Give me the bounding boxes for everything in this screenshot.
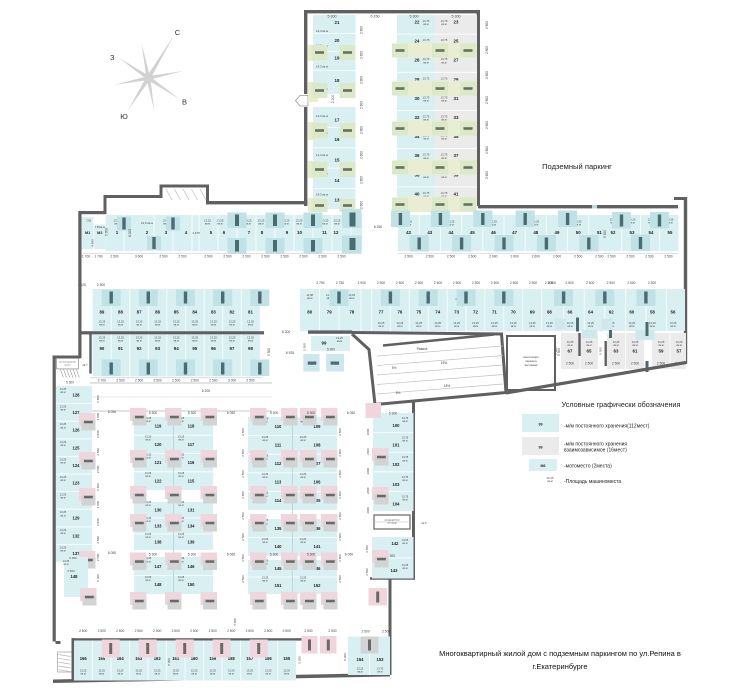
svg-text:94: 94 (174, 346, 179, 351)
svg-text:2 750: 2 750 (336, 281, 344, 285)
svg-text:87: 87 (137, 310, 142, 315)
svg-text:2 500: 2 500 (338, 428, 342, 436)
svg-text:2 600: 2 600 (485, 171, 489, 179)
svg-text:2 500: 2 500 (172, 379, 180, 383)
svg-text:2 600: 2 600 (360, 51, 364, 59)
svg-text:125: 125 (73, 445, 81, 450)
svg-text:2 500: 2 500 (153, 629, 161, 633)
svg-text:2 500: 2 500 (96, 518, 100, 526)
svg-text:кв.м: кв.м (588, 325, 593, 328)
svg-text:103: 103 (393, 482, 401, 487)
svg-text:74: 74 (435, 310, 440, 315)
svg-text:49: 49 (555, 230, 560, 235)
svg-text:126: 126 (73, 428, 81, 433)
svg-text:14,3 кв.м: 14,3 кв.м (316, 65, 328, 69)
svg-text:кв.м: кв.м (145, 475, 150, 478)
svg-text:2К-7: 2К-7 (82, 363, 88, 367)
svg-text:кв.м: кв.м (377, 671, 382, 674)
svg-text:78: 78 (349, 310, 354, 315)
svg-text:101: 101 (393, 443, 401, 448)
svg-text:5 300: 5 300 (603, 230, 607, 238)
svg-text:Ю: Ю (120, 112, 128, 121)
svg-text:16: 16 (335, 137, 340, 142)
svg-text:2 800: 2 800 (360, 26, 364, 34)
svg-text:М1: М1 (85, 231, 90, 235)
svg-text:2 500: 2 500 (241, 449, 245, 457)
svg-text:кв.м: кв.м (441, 138, 446, 141)
svg-text:кв.м: кв.м (423, 23, 428, 26)
svg-text:кв.м: кв.м (441, 23, 446, 26)
svg-text:вытяжная: вытяжная (525, 363, 538, 367)
svg-text:эвакуационная: эвакуационная (384, 520, 400, 522)
svg-text:5 300: 5 300 (599, 347, 603, 355)
svg-text:кв.м: кв.м (632, 344, 637, 347)
svg-text:7,65кв.м: 7,65кв.м (95, 225, 105, 229)
svg-text:59: 59 (659, 349, 664, 354)
svg-text:90: 90 (99, 346, 104, 351)
svg-text:кв.м: кв.м (99, 324, 104, 327)
svg-text:2 500: 2 500 (627, 281, 635, 285)
svg-text:2 500: 2 500 (299, 255, 307, 259)
svg-text:кв.м: кв.м (60, 462, 65, 465)
svg-text:86: 86 (155, 310, 160, 315)
svg-text:кв.м: кв.м (300, 439, 305, 442)
svg-text:кв.м: кв.м (300, 580, 305, 583)
svg-text:2 500: 2 500 (264, 629, 272, 633)
svg-text:81: 81 (248, 310, 253, 315)
svg-text:Условные графически обозначени: Условные графически обозначения (562, 400, 681, 409)
svg-text:кв.м: кв.м (60, 497, 65, 500)
svg-text:63: 63 (614, 349, 619, 354)
svg-text:3 600: 3 600 (135, 255, 143, 259)
svg-text:31: 31 (454, 96, 459, 101)
svg-text:2 500: 2 500 (135, 629, 143, 633)
svg-text:6 050: 6 050 (345, 553, 353, 557)
svg-text:5 300: 5 300 (188, 553, 196, 557)
svg-text:2 500: 2 500 (338, 491, 342, 499)
svg-text:2 500: 2 500 (96, 448, 100, 456)
svg-text:В: В (182, 98, 187, 107)
svg-text:2 500: 2 500 (361, 630, 369, 634)
svg-text:72: 72 (473, 310, 478, 315)
svg-text:50: 50 (576, 230, 581, 235)
svg-text:2 500: 2 500 (304, 629, 312, 633)
svg-text:2 500: 2 500 (396, 281, 404, 285)
svg-text:кв.м: кв.м (258, 223, 263, 226)
svg-text:кв.м: кв.м (178, 536, 183, 539)
svg-text:122: 122 (155, 478, 163, 483)
svg-text:2 500: 2 500 (241, 491, 245, 499)
svg-text:2 500: 2 500 (595, 255, 603, 259)
svg-text:2 600: 2 600 (510, 255, 518, 259)
svg-text:кв.м: кв.м (99, 340, 104, 343)
svg-text:вентиляционная: вентиляционная (59, 362, 77, 364)
svg-text:1 700: 1 700 (82, 255, 90, 259)
svg-text:69: 69 (530, 310, 535, 315)
svg-text:67: 67 (568, 349, 573, 354)
svg-text:2 500: 2 500 (191, 379, 199, 383)
svg-text:кв.м: кв.м (676, 344, 681, 347)
svg-text:кв.м: кв.м (492, 325, 497, 328)
svg-text:2 600: 2 600 (360, 151, 364, 159)
svg-text:кв.м: кв.м (349, 297, 354, 300)
svg-text:106: 106 (314, 480, 322, 485)
svg-text:93: 93 (155, 346, 160, 351)
svg-text:2 600: 2 600 (485, 71, 489, 79)
svg-text:2 600: 2 600 (360, 101, 364, 109)
svg-text:118: 118 (188, 424, 195, 429)
svg-text:Рампа: Рампа (417, 347, 428, 351)
svg-text:5 300: 5 300 (270, 553, 278, 557)
svg-text:1 700: 1 700 (94, 255, 102, 259)
svg-text:кв.м: кв.м (248, 340, 253, 343)
svg-text:кв.м: кв.м (155, 340, 160, 343)
svg-text:кв.м: кв.м (378, 325, 383, 328)
svg-text:2 500: 2 500 (565, 281, 573, 285)
svg-text:2 500: 2 500 (280, 255, 288, 259)
svg-text:92: 92 (137, 346, 142, 351)
svg-text:2 500: 2 500 (631, 362, 639, 366)
svg-text:6 050: 6 050 (108, 551, 116, 555)
svg-text:41: 41 (454, 191, 459, 196)
svg-text:89: 89 (99, 310, 104, 315)
svg-text:152: 152 (314, 583, 322, 588)
svg-text:-Площадь машиноместа: -Площадь машиноместа (564, 479, 621, 485)
svg-text:19: 19 (335, 56, 340, 61)
svg-text:2 500: 2 500 (338, 575, 342, 583)
svg-text:2 500: 2 500 (241, 554, 245, 562)
svg-text:99: 99 (322, 341, 327, 346)
svg-text:2 500: 2 500 (338, 470, 342, 478)
svg-text:3 000: 3 000 (228, 379, 236, 383)
svg-text:5 300: 5 300 (389, 412, 397, 416)
svg-text:52: 52 (611, 230, 616, 235)
svg-text:кв.м: кв.м (547, 325, 552, 328)
svg-text:5 300: 5 300 (410, 15, 419, 19)
svg-text:кв.м: кв.м (266, 673, 271, 676)
svg-text:2 500: 2 500 (607, 281, 615, 285)
svg-text:кв.м: кв.м (262, 541, 267, 544)
svg-text:5 300: 5 300 (69, 556, 77, 560)
svg-text:5 300: 5 300 (96, 574, 100, 582)
svg-text:6 250: 6 250 (374, 225, 382, 229)
svg-text:кв.м: кв.м (136, 673, 141, 676)
svg-text:66: 66 (568, 310, 573, 315)
svg-text:71: 71 (492, 310, 497, 315)
svg-text:51: 51 (597, 230, 602, 235)
svg-text:кв.м: кв.м (262, 476, 267, 479)
svg-text:5 300: 5 300 (327, 347, 335, 351)
svg-text:2 500: 2 500 (135, 379, 143, 383)
svg-text:147: 147 (155, 564, 163, 569)
svg-text:95: 95 (192, 346, 197, 351)
svg-text:кв.м: кв.м (357, 671, 362, 674)
svg-text:кв.м: кв.м (473, 325, 478, 328)
svg-text:кв.м: кв.м (402, 499, 407, 502)
svg-text:98: 98 (248, 346, 253, 351)
svg-text:138: 138 (155, 540, 163, 545)
svg-text:2 500: 2 500 (241, 575, 245, 583)
svg-text:2 500: 2 500 (242, 255, 250, 259)
svg-text:100: 100 (393, 423, 401, 428)
svg-text:30: 30 (415, 96, 420, 101)
svg-text:45: 45 (470, 230, 475, 235)
svg-text:47: 47 (512, 230, 517, 235)
svg-text:кв.м: кв.м (586, 344, 591, 347)
svg-text:кв.м: кв.м (145, 504, 150, 507)
svg-text:2 500: 2 500 (178, 255, 186, 259)
svg-text:65: 65 (587, 349, 592, 354)
svg-text:2 500: 2 500 (209, 379, 217, 383)
svg-text:шахта: шахта (64, 365, 71, 367)
svg-text:148: 148 (155, 582, 163, 587)
svg-text:2 500: 2 500 (645, 255, 653, 259)
svg-text:2 600: 2 600 (360, 201, 364, 209)
svg-text:96: 96 (211, 346, 216, 351)
svg-text:Многоквартирный жилой дом с по: Многоквартирный жилой дом с подземным па… (439, 649, 681, 658)
svg-text:61: 61 (633, 349, 638, 354)
svg-text:кв.м: кв.м (262, 580, 267, 583)
svg-text:2 500: 2 500 (510, 281, 518, 285)
svg-text:кв.м: кв.м (248, 324, 253, 327)
svg-text:27: 27 (454, 58, 459, 63)
svg-text:Подземный паркинг: Подземный паркинг (542, 162, 612, 171)
svg-text:10: 10 (297, 230, 302, 235)
svg-text:17: 17 (335, 118, 340, 123)
svg-text:2 500: 2 500 (116, 379, 124, 383)
svg-text:2 500: 2 500 (96, 465, 100, 473)
svg-text:14,3 кв.м: 14,3 кв.м (316, 193, 328, 197)
svg-text:кв.м: кв.м (322, 223, 327, 226)
svg-text:лестница: лестница (387, 523, 397, 525)
svg-text:кв.м: кв.м (229, 340, 234, 343)
svg-text:кв.м: кв.м (81, 673, 86, 676)
svg-text:2 800: 2 800 (360, 176, 364, 184)
svg-text:5 300: 5 300 (149, 411, 157, 415)
svg-text:кв.м: кв.м (402, 440, 407, 443)
svg-text:55: 55 (668, 230, 673, 235)
svg-text:кв.м: кв.м (60, 444, 65, 447)
svg-text:120: 120 (155, 442, 163, 447)
svg-text:104: 104 (393, 501, 401, 506)
svg-text:2 500: 2 500 (626, 255, 634, 259)
svg-text:145: 145 (275, 566, 283, 571)
svg-text:57: 57 (677, 349, 682, 354)
svg-text:110: 110 (275, 424, 282, 429)
svg-text:2 500: 2 500 (283, 629, 291, 633)
svg-text:21: 21 (335, 20, 340, 25)
svg-text:кв.м: кв.м (174, 324, 179, 327)
svg-text:кв.м: кв.м (435, 325, 440, 328)
svg-text:кв.м: кв.м (296, 223, 301, 226)
svg-text:кв.м: кв.м (670, 325, 675, 328)
svg-text:2 500: 2 500 (447, 255, 455, 259)
svg-text:2 500: 2 500 (96, 536, 100, 544)
svg-text:-м/м постоянного хранения(112м: -м/м постоянного хранения(112мест) (564, 424, 650, 430)
svg-text:2 500: 2 500 (585, 362, 593, 366)
svg-text:140: 140 (275, 544, 283, 549)
svg-text:2 500: 2 500 (209, 629, 217, 633)
svg-text:кв.м: кв.м (211, 340, 216, 343)
svg-text:12: 12 (334, 230, 339, 235)
svg-text:2 500: 2 500 (337, 255, 345, 259)
svg-text:26: 26 (415, 58, 420, 63)
svg-text:кв.м: кв.м (174, 340, 179, 343)
svg-text:6 925: 6 925 (286, 351, 294, 355)
svg-text:129: 129 (73, 516, 81, 521)
svg-text:кв.м: кв.м (118, 340, 123, 343)
svg-text:5 300: 5 300 (298, 656, 302, 664)
svg-text:2 500: 2 500 (607, 255, 615, 259)
svg-text:2 500: 2 500 (648, 281, 656, 285)
svg-text:кв.м: кв.м (178, 504, 183, 507)
svg-text:76: 76 (397, 310, 402, 315)
svg-text:кв.м: кв.м (173, 673, 178, 676)
svg-text:2 500: 2 500 (96, 483, 100, 491)
svg-text:116: 116 (188, 460, 195, 465)
svg-text:кв.м: кв.м (60, 514, 65, 517)
svg-text:кв.м: кв.м (60, 391, 65, 394)
svg-text:2 500: 2 500 (365, 545, 369, 553)
svg-text:2 500: 2 500 (96, 395, 100, 403)
svg-text:5%: 5% (392, 366, 397, 370)
svg-text:2 600: 2 600 (553, 255, 561, 259)
svg-text:2 900: 2 900 (358, 281, 366, 285)
svg-text:154: 154 (357, 657, 365, 662)
svg-text:5 300: 5 300 (188, 411, 196, 415)
svg-text:32: 32 (415, 115, 420, 120)
svg-text:23: 23 (454, 20, 459, 25)
svg-text:кв.м: кв.м (136, 340, 141, 343)
svg-text:2 500: 2 500 (491, 281, 499, 285)
svg-text:133: 133 (155, 524, 163, 529)
svg-text:кв.м: кв.м (60, 426, 65, 429)
svg-text:2 500: 2 500 (223, 255, 231, 259)
svg-text:2 500: 2 500 (382, 630, 390, 634)
svg-text:75: 75 (416, 310, 421, 315)
svg-text:5 300: 5 300 (307, 553, 315, 557)
svg-text:2 500: 2 500 (246, 629, 254, 633)
svg-text:кв.м: кв.м (145, 439, 150, 442)
svg-text:2 500: 2 500 (338, 533, 342, 541)
svg-text:14,3 кв.м: 14,3 кв.м (316, 29, 328, 33)
svg-text:кв.м: кв.м (192, 340, 197, 343)
svg-text:2 500: 2 500 (116, 629, 124, 633)
svg-text:2 500: 2 500 (96, 413, 100, 421)
svg-text:2 500: 2 500 (227, 629, 235, 633)
svg-text:кв.м: кв.м (178, 439, 183, 442)
svg-text:5 300: 5 300 (149, 553, 157, 557)
svg-text:кв.м: кв.м (192, 324, 197, 327)
svg-text:77: 77 (379, 310, 384, 315)
svg-text:М2: М2 (97, 231, 102, 235)
svg-text:142: 142 (392, 541, 400, 546)
svg-text:кв.м: кв.м (402, 459, 407, 462)
svg-text:кв.м: кв.м (334, 223, 339, 226)
svg-text:кв.м: кв.м (307, 297, 312, 300)
svg-text:кв.м: кв.м (337, 340, 342, 343)
svg-text:2 500: 2 500 (318, 255, 326, 259)
svg-text:2 800: 2 800 (485, 146, 489, 154)
svg-text:5%: 5% (396, 391, 401, 395)
svg-text:13: 13 (335, 198, 340, 203)
svg-text:взаимозависимое (16мест): взаимозависимое (16мест) (564, 448, 627, 454)
svg-text:70: 70 (511, 310, 516, 315)
svg-text:33: 33 (454, 115, 459, 120)
svg-text:кв.м: кв.м (155, 673, 160, 676)
svg-text:2 500: 2 500 (529, 281, 537, 285)
svg-text:кв.м: кв.м (567, 325, 572, 328)
svg-text:112: 112 (275, 461, 282, 466)
svg-text:кв.м: кв.м (99, 673, 104, 676)
svg-text:132: 132 (73, 533, 81, 538)
svg-text:2 500: 2 500 (365, 568, 369, 576)
svg-text:кв.м: кв.м (567, 344, 572, 347)
svg-text:кв.м: кв.м (402, 567, 407, 570)
svg-text:6 200: 6 200 (202, 389, 210, 393)
svg-text:155: 155 (283, 656, 291, 661)
svg-text:18%: 18% (444, 384, 451, 388)
svg-text:кв.м: кв.м (247, 673, 252, 676)
svg-text:5 300: 5 300 (105, 228, 109, 236)
svg-text:11: 11 (322, 230, 327, 235)
svg-text:131: 131 (188, 508, 196, 513)
svg-text:14,3 кв.м: 14,3 кв.м (316, 114, 328, 118)
svg-text:114: 114 (275, 498, 282, 503)
svg-text:46: 46 (491, 230, 496, 235)
svg-text:44: 44 (449, 230, 454, 235)
svg-text:48: 48 (533, 230, 538, 235)
svg-text:1 475: 1 475 (192, 231, 200, 235)
svg-text:кв.м: кв.м (650, 325, 655, 328)
svg-text:153: 153 (377, 657, 385, 662)
svg-text:5 300: 5 300 (307, 411, 315, 415)
svg-text:2 500: 2 500 (96, 501, 100, 509)
svg-text:кв.м: кв.м (118, 324, 123, 327)
svg-text:кв.м: кв.м (145, 579, 150, 582)
svg-text:6 150: 6 150 (371, 15, 380, 19)
svg-text:2 500: 2 500 (472, 281, 480, 285)
svg-text:кв.м: кв.м (402, 479, 407, 482)
svg-text:14,3 кв.м: 14,3 кв.м (316, 153, 328, 157)
svg-text:г.Екатеринбурге: г.Екатеринбурге (532, 662, 587, 671)
svg-text:кв.м: кв.м (423, 138, 428, 141)
svg-text:2 500: 2 500 (415, 281, 423, 285)
svg-text:5 300: 5 300 (343, 653, 347, 661)
svg-text:128: 128 (73, 393, 81, 398)
svg-text:2 800: 2 800 (485, 46, 489, 54)
svg-text:кв.м: кв.м (397, 325, 402, 328)
svg-text:2 500: 2 500 (377, 281, 385, 285)
svg-text:2 500: 2 500 (574, 255, 582, 259)
svg-text:кв.м: кв.м (441, 61, 446, 64)
svg-text:5 300: 5 300 (167, 658, 171, 666)
svg-text:36: 36 (415, 153, 420, 158)
svg-text:2 500: 2 500 (586, 281, 594, 285)
svg-text:кв.м: кв.м (511, 325, 516, 328)
svg-text:кв.м: кв.м (211, 324, 216, 327)
svg-text:91: 91 (118, 346, 123, 351)
svg-text:83: 83 (211, 310, 216, 315)
svg-text:5 300: 5 300 (452, 15, 461, 19)
svg-text:85: 85 (174, 310, 179, 315)
svg-text:кв.м: кв.м (454, 325, 459, 328)
svg-text:кв.м: кв.м (629, 325, 634, 328)
svg-text:99: 99 (539, 423, 543, 427)
svg-text:117: 117 (188, 442, 195, 447)
svg-text:кв.м: кв.м (658, 344, 663, 347)
svg-text:кв.м: кв.м (60, 550, 65, 553)
